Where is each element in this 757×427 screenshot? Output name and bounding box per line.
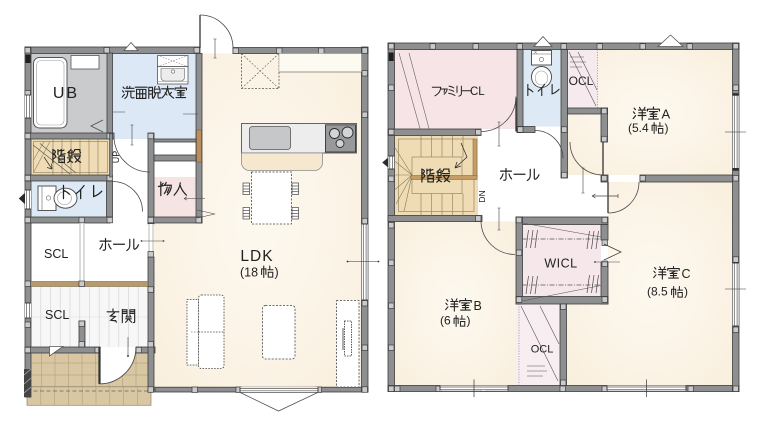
svg-text:LDK: LDK <box>240 248 273 265</box>
svg-text:OCL: OCL <box>531 344 554 356</box>
svg-text:(18: (18 <box>240 266 258 280</box>
svg-text:UB: UB <box>53 85 79 102</box>
svg-text:(6: (6 <box>440 314 451 328</box>
svg-text:): ) <box>665 121 669 135</box>
svg-text:B: B <box>474 299 482 313</box>
svg-text:C: C <box>682 267 691 281</box>
svg-text:): ) <box>275 266 279 280</box>
svg-text:SCL: SCL <box>45 308 69 322</box>
svg-text:OCL: OCL <box>569 74 594 88</box>
svg-text:(5.4: (5.4 <box>628 121 649 135</box>
svg-text:UP: UP <box>111 151 121 164</box>
svg-text:A: A <box>662 107 671 122</box>
svg-text:SCL: SCL <box>44 247 68 261</box>
svg-text:): ) <box>684 285 688 299</box>
svg-text:DN: DN <box>477 190 487 202</box>
svg-text:(8.5: (8.5 <box>647 285 668 299</box>
svg-text:WICL: WICL <box>544 257 577 271</box>
svg-text:): ) <box>467 314 471 328</box>
svg-text:CL: CL <box>470 86 485 98</box>
